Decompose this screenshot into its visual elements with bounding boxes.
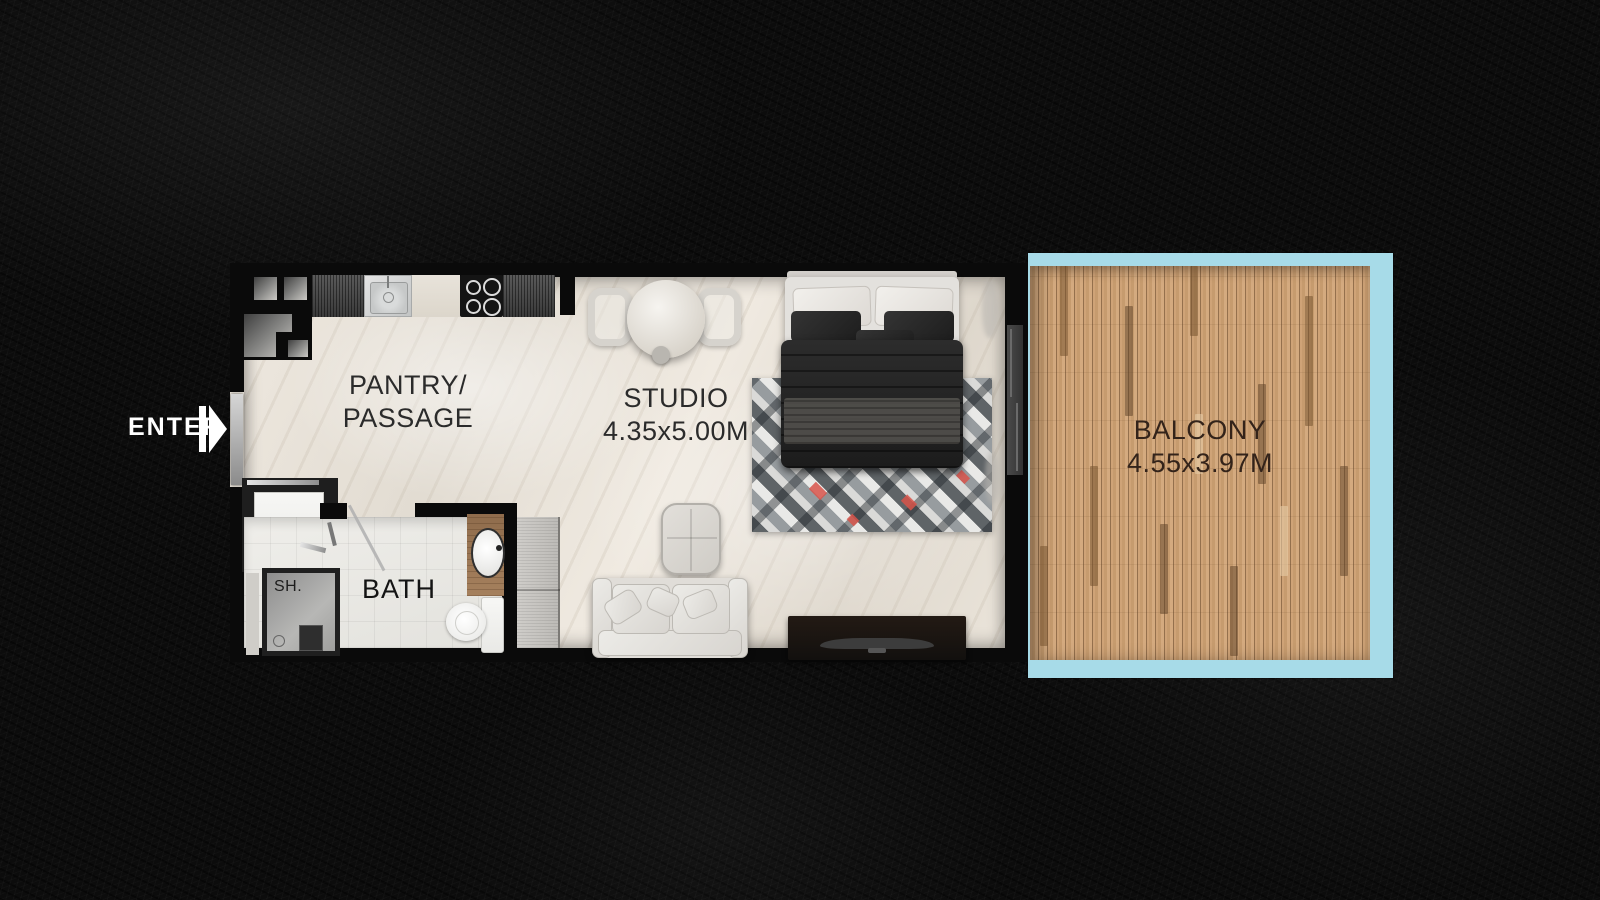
balcony-name: BALCONY — [1030, 414, 1370, 447]
kitchen-counter — [503, 275, 555, 317]
balcony-railing-frame: BALCONY 4.55x3.97M — [1028, 253, 1393, 678]
enter-arrowhead-icon — [209, 405, 227, 453]
door-glass-line — [1016, 403, 1018, 471]
shaft-square — [284, 277, 307, 300]
plant — [985, 452, 999, 504]
floor-plan: BALCONY 4.55x3.97M — [0, 0, 1600, 900]
towel-rail-icon — [247, 480, 319, 485]
shower: SH. — [262, 568, 340, 656]
balcony-label: BALCONY 4.55x3.97M — [1030, 414, 1370, 481]
bath-wall — [320, 503, 347, 519]
deck-plank — [1340, 466, 1348, 576]
shower-label: SH. — [274, 578, 302, 596]
duvet-fold — [784, 398, 960, 444]
shower-drain-icon — [273, 635, 285, 647]
bed-duvet — [781, 340, 963, 468]
shaft-square — [288, 340, 308, 357]
pantry-label-line2: PASSAGE — [320, 402, 496, 435]
right-wall — [1005, 263, 1028, 325]
bath-wall — [502, 503, 517, 648]
studio-dimensions: 4.35x5.00M — [576, 415, 776, 448]
vanity-faucet-icon — [496, 545, 502, 551]
wall-stub — [560, 277, 575, 315]
studio-label: STUDIO 4.35x5.00M — [576, 382, 776, 449]
toilet-seat — [455, 611, 479, 635]
kitchen-sink — [364, 275, 412, 317]
balcony-deck: BALCONY 4.55x3.97M — [1030, 266, 1370, 660]
dining-table — [627, 280, 705, 358]
shower-drain-box — [299, 625, 323, 651]
shaft-square — [254, 277, 277, 300]
pouf-seam — [667, 537, 717, 539]
deck-plank — [1060, 266, 1068, 356]
dining-chair — [588, 288, 632, 346]
shower-niche — [246, 573, 259, 655]
sofa — [592, 578, 748, 658]
balcony-sliding-door — [1007, 325, 1023, 475]
wardrobe-seam — [517, 589, 560, 591]
burner-icon — [466, 280, 481, 295]
bath-label: BATH — [362, 574, 436, 605]
studio-name: STUDIO — [576, 382, 776, 415]
enter-arrow-icon — [199, 406, 206, 452]
burner-icon — [483, 298, 501, 316]
kitchen-counter — [312, 275, 364, 317]
pouf — [661, 503, 721, 575]
burner-icon — [483, 278, 501, 296]
door-glass-line — [1010, 329, 1012, 397]
kitchen-counter — [412, 275, 460, 317]
faucet-icon — [387, 276, 389, 288]
sink-drain — [383, 292, 394, 303]
bed-accent-pillow — [791, 311, 861, 342]
plant — [982, 280, 998, 338]
right-wall — [1005, 475, 1028, 662]
deck-plank — [1190, 266, 1198, 336]
deck-plank — [1160, 524, 1168, 614]
wardrobe — [517, 517, 560, 648]
vanity-sink — [471, 528, 505, 578]
deck-plank — [1040, 546, 1048, 646]
pantry-label-line1: PANTRY/ — [320, 369, 496, 402]
deck-plank — [1125, 306, 1133, 416]
pantry-label: PANTRY/ PASSAGE — [320, 369, 496, 436]
balcony-dimensions: 4.55x3.97M — [1030, 447, 1370, 480]
deck-plank — [1230, 566, 1238, 656]
table-vase — [652, 346, 670, 364]
tv-stand — [868, 648, 886, 653]
deck-plank — [1280, 506, 1288, 576]
deck-plank — [1305, 296, 1313, 426]
stove-hob — [460, 275, 503, 317]
entry-door — [231, 394, 243, 485]
pouf-seam — [690, 509, 692, 571]
burner-icon — [466, 299, 481, 314]
deck-plank — [1090, 466, 1098, 586]
